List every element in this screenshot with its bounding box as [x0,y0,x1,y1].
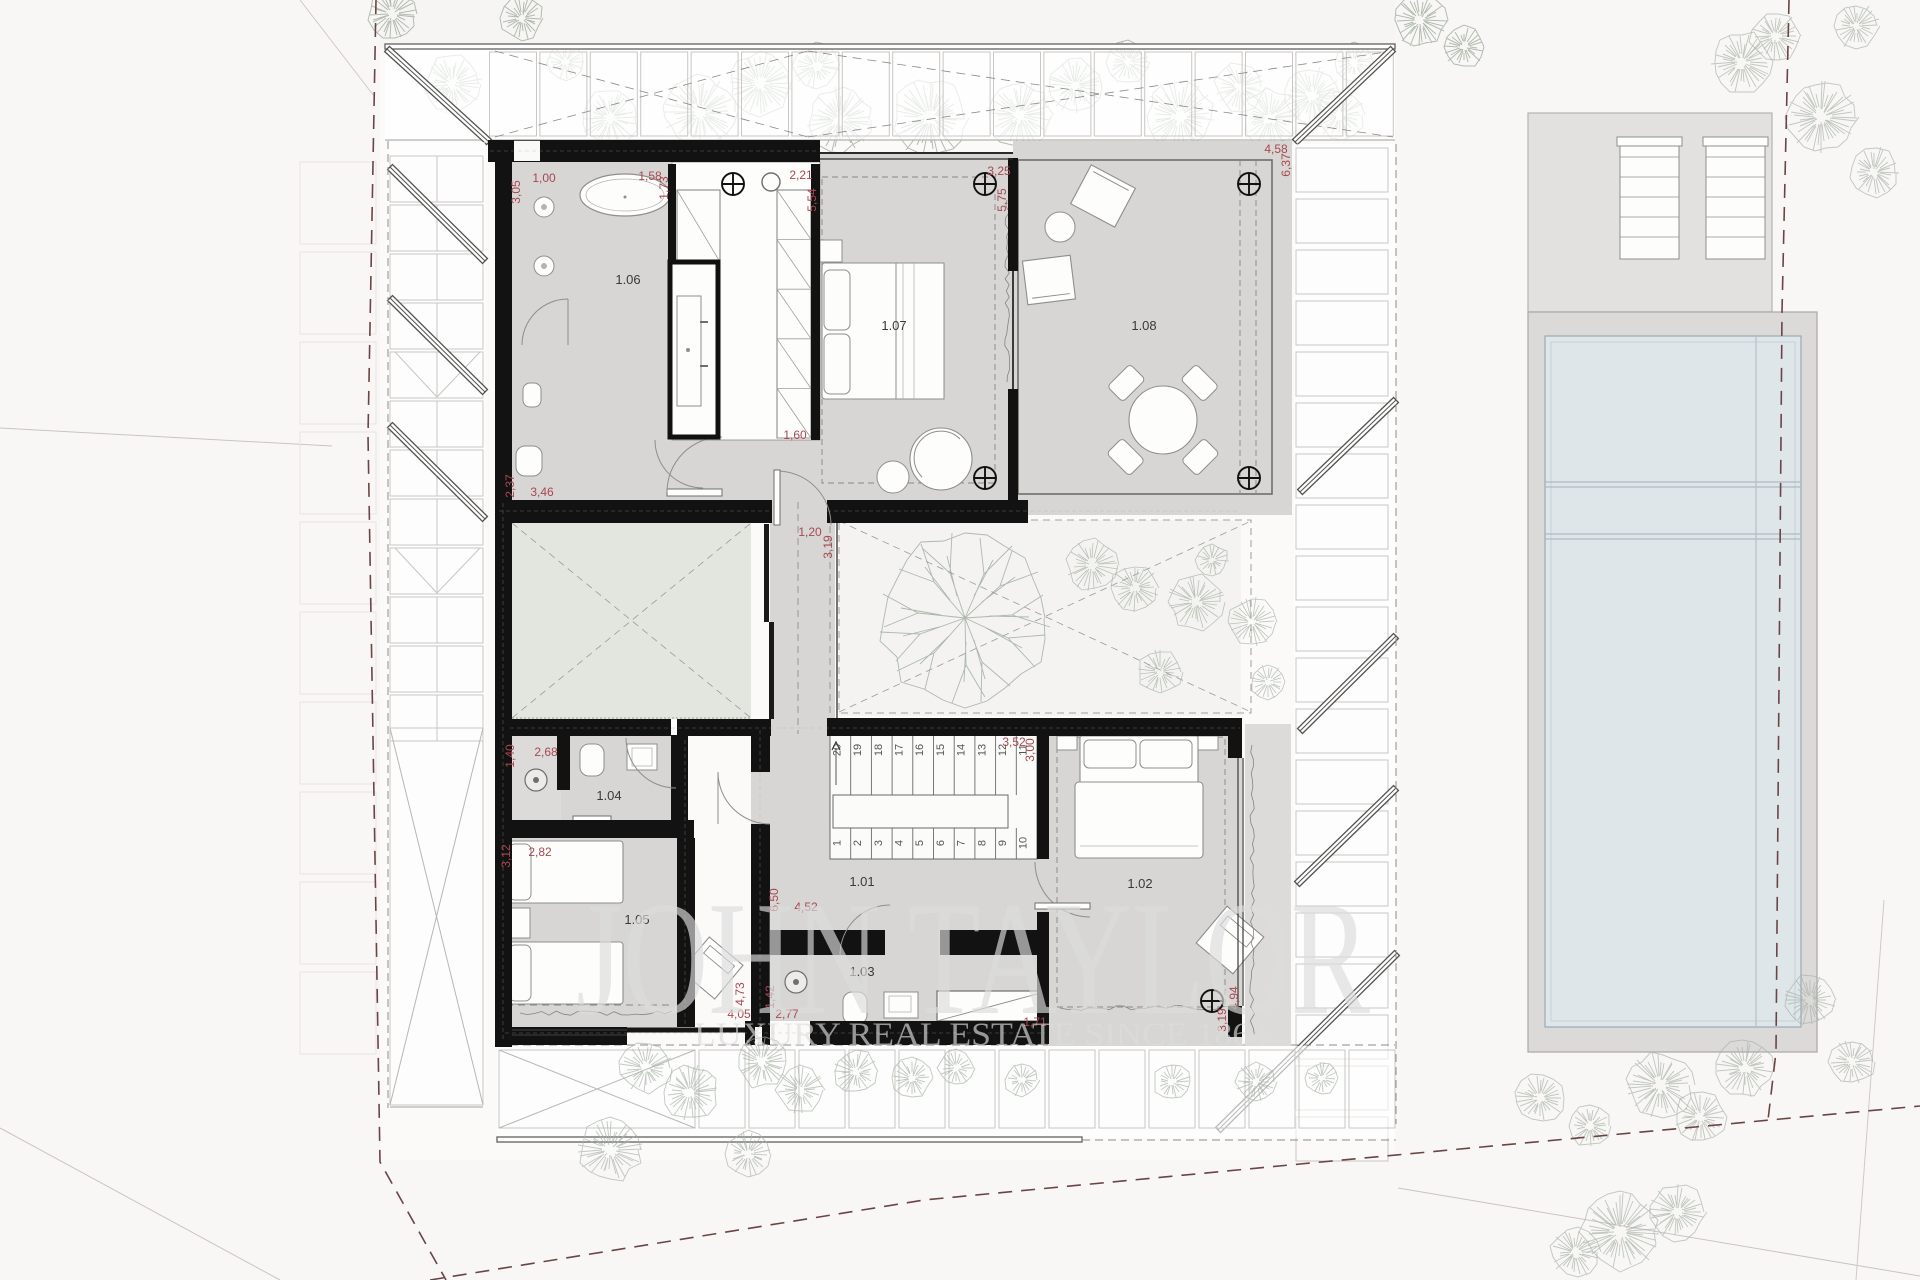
svg-text:8: 8 [976,840,988,846]
svg-text:3,12: 3,12 [499,844,513,868]
svg-text:3,25: 3,25 [987,164,1011,178]
svg-text:1,40: 1,40 [503,744,517,768]
svg-text:9: 9 [997,840,1009,846]
svg-text:18: 18 [873,744,885,756]
svg-text:1: 1 [831,840,843,846]
svg-text:6,37: 6,37 [1279,153,1293,177]
svg-text:13: 13 [976,744,988,756]
svg-text:1.04: 1.04 [596,788,621,803]
svg-text:5,54: 5,54 [805,188,819,212]
svg-text:1,60: 1,60 [783,428,807,442]
svg-text:1,00: 1,00 [532,171,556,185]
svg-text:5: 5 [914,840,926,846]
svg-text:3,05: 3,05 [509,180,523,204]
svg-text:1.07: 1.07 [881,318,906,333]
svg-text:4: 4 [893,840,905,846]
svg-text:2,82: 2,82 [528,845,552,859]
svg-text:3,00: 3,00 [1023,738,1037,762]
svg-text:7: 7 [956,840,968,846]
svg-text:1,73: 1,73 [657,176,671,200]
svg-text:LUXURY REAL ESTATE SINCE 1864: LUXURY REAL ESTATE SINCE 1864 [694,1017,1268,1053]
svg-text:2,68: 2,68 [534,745,558,759]
svg-text:1.06: 1.06 [615,272,640,287]
svg-text:15: 15 [935,744,947,756]
svg-text:3,19: 3,19 [821,535,835,559]
svg-text:3,46: 3,46 [530,485,554,499]
svg-text:2: 2 [852,840,864,846]
svg-text:19: 19 [852,744,864,756]
svg-text:6: 6 [935,840,947,846]
svg-text:1.08: 1.08 [1131,318,1156,333]
svg-text:3: 3 [873,840,885,846]
svg-text:2,37: 2,37 [503,474,517,498]
svg-text:1,20: 1,20 [798,525,822,539]
svg-text:14: 14 [956,744,968,756]
svg-text:2,21: 2,21 [789,168,813,182]
svg-text:5,75: 5,75 [995,188,1009,212]
svg-text:10: 10 [1018,837,1030,849]
svg-text:17: 17 [893,744,905,756]
svg-text:16: 16 [914,744,926,756]
